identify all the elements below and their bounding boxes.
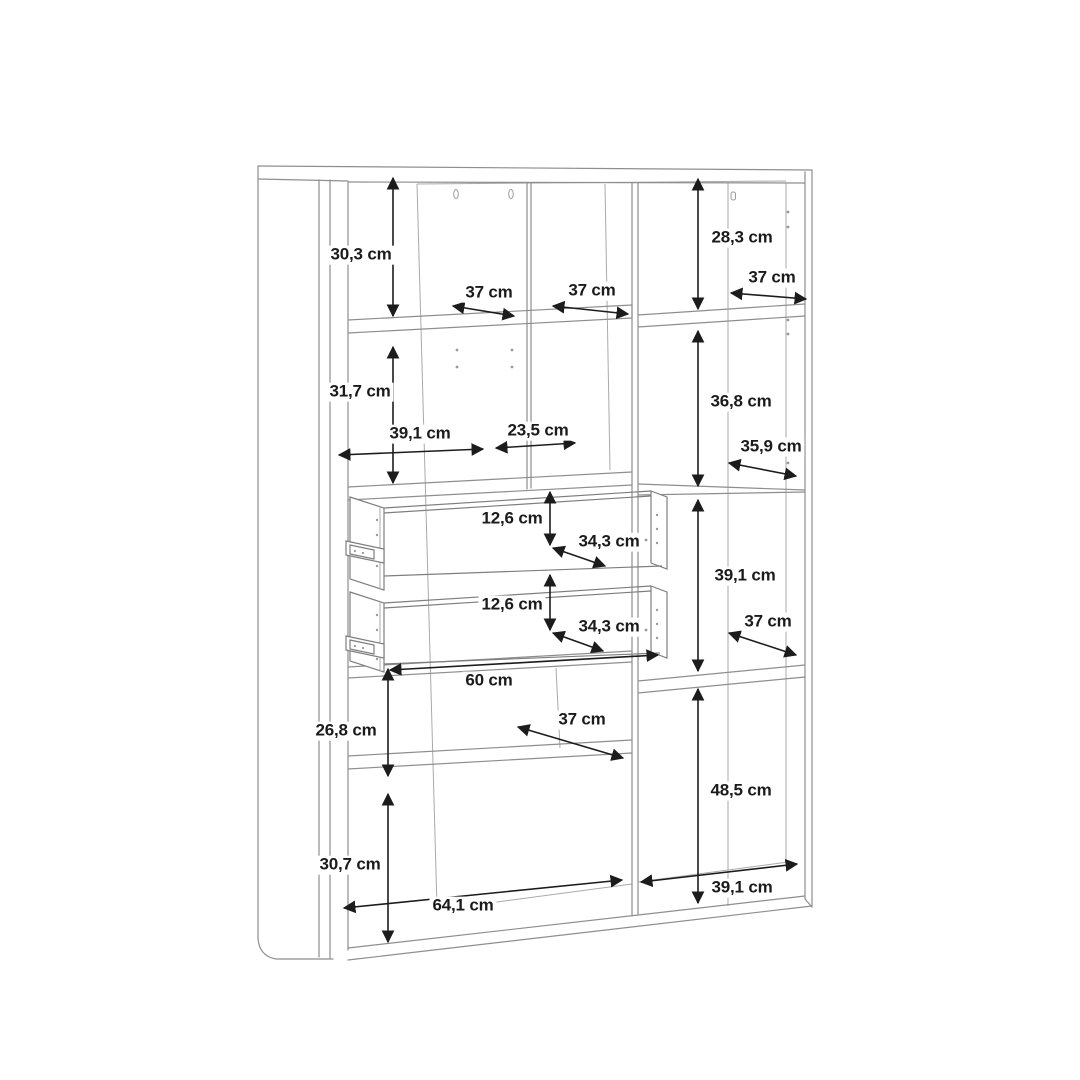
dim-arrow-bottom-right-width	[641, 864, 797, 882]
dim-arrow-left-column-width	[339, 449, 483, 455]
cabinet-structure	[258, 166, 812, 960]
dim-arrow-drawer-2-depth	[553, 633, 603, 651]
back-panel-lines	[417, 181, 788, 910]
furniture-dimension-diagram: 30,3 cm 28,3 cm 37 cm 37 cm 37 cm 31,7 c…	[0, 0, 1080, 1080]
dim-arrow-center-column-width	[496, 443, 575, 448]
dimension-arrows	[339, 178, 806, 942]
dim-arrow-right-column-top-depth	[731, 293, 806, 299]
drawer-2	[346, 586, 667, 672]
dim-arrow-lower-shelf-depth	[518, 727, 623, 758]
pin-holes	[454, 190, 790, 634]
shelves	[348, 304, 805, 769]
drawer-1	[346, 491, 667, 590]
dim-arrow-drawer-1-depth	[553, 548, 605, 566]
cabinet-line-drawing	[0, 0, 1080, 1080]
